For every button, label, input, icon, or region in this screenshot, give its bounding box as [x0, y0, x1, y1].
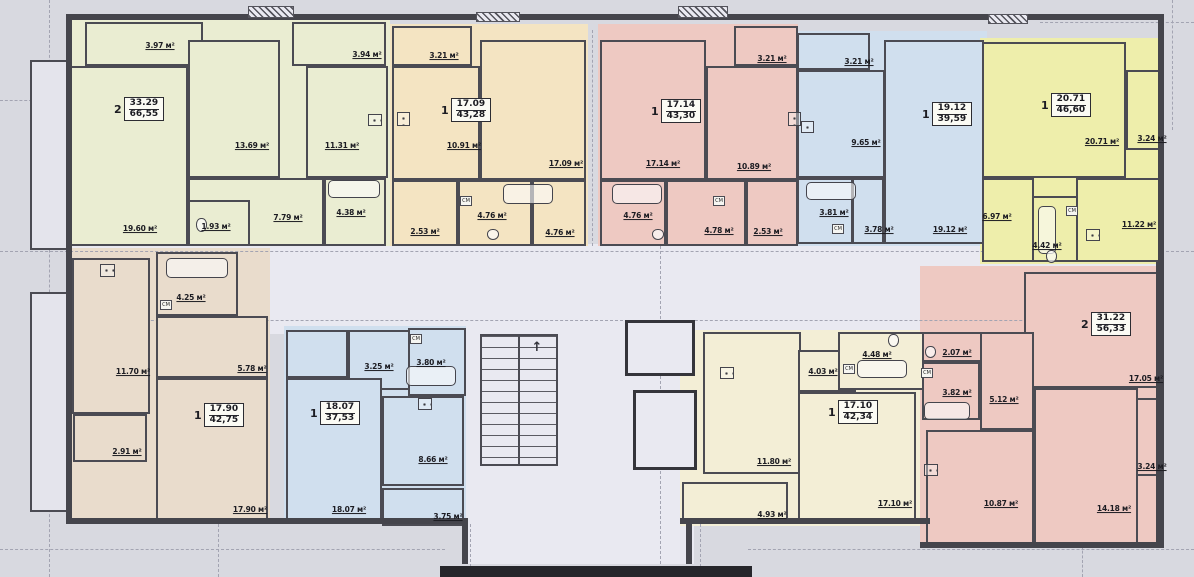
- bathtub-icon: [406, 366, 456, 386]
- apartment-total-area: 66,55: [129, 110, 159, 120]
- room-area-label: 2.53 м²: [753, 227, 782, 236]
- apartment-areas: 17.9042,75: [204, 403, 244, 427]
- room-area-label: 3.81 м²: [819, 208, 848, 217]
- room-area-label: 4.78 м²: [704, 226, 733, 235]
- stove-icon: [368, 114, 382, 126]
- apartment-areas: 31.2256,33: [1091, 312, 1131, 336]
- room-area-label: 19.60 м²: [123, 224, 157, 233]
- room-area-label: 1.93 м²: [201, 222, 230, 231]
- apartment-room-count: 1: [828, 406, 836, 419]
- apartment-areas: 17.1443,30: [661, 99, 701, 123]
- apartment-info-box: 120.7146,60: [1041, 93, 1091, 117]
- room-area-label: 3.21 м²: [844, 57, 873, 66]
- room-area-label: 9.65 м²: [851, 138, 880, 147]
- apartment-room-count: 1: [651, 105, 659, 118]
- apartment-total-area: 43,30: [666, 112, 696, 122]
- washing-machine-label: СМ: [843, 364, 855, 374]
- room: [30, 292, 68, 512]
- apartment-info-box: 117.0943,28: [441, 98, 491, 122]
- room: [852, 178, 884, 244]
- toilet-icon: [652, 229, 664, 240]
- apartment-areas: 17.0943,28: [451, 98, 491, 122]
- room: [72, 258, 150, 414]
- apartment-total-area: 39,59: [937, 115, 967, 125]
- apartment-areas: 19.1239,59: [932, 102, 972, 126]
- room-area-label: 10.89 м²: [737, 162, 771, 171]
- room-area-label: 4.03 м²: [808, 367, 837, 376]
- stove-icon: [397, 112, 410, 126]
- bathtub-icon: [503, 184, 553, 204]
- room: [884, 40, 984, 244]
- wall: [1156, 262, 1164, 546]
- washing-machine-label: СМ: [921, 368, 933, 378]
- apartment-room-count: 2: [114, 103, 122, 116]
- room-area-label: 4.76 м²: [545, 228, 574, 237]
- apartment-room-count: 2: [1081, 318, 1089, 331]
- apartment-total-area: 37,53: [325, 414, 355, 424]
- room-area-label: 11.70 м²: [116, 367, 150, 376]
- stairs-up-arrow: ↑: [531, 340, 542, 355]
- bathtub-icon: [924, 402, 970, 420]
- apartment-room-count: 1: [441, 104, 449, 117]
- room-area-label: 3.75 м²: [433, 512, 462, 521]
- room-area-label: 11.22 м²: [1122, 220, 1156, 229]
- elevator-shaft: [625, 320, 695, 376]
- apartment-info-box: 231.2256,33: [1081, 312, 1131, 336]
- room-area-label: 2.91 м²: [112, 447, 141, 456]
- balcony-railing-hatch: [988, 14, 1028, 24]
- room: [286, 378, 382, 520]
- axis-dash-line: [1082, 546, 1083, 577]
- room-area-label: 7.79 м²: [273, 213, 302, 222]
- wall: [66, 518, 468, 524]
- room-area-label: 8.66 м²: [418, 455, 447, 464]
- room-area-label: 5.12 м²: [989, 395, 1018, 404]
- balcony-railing-hatch: [476, 12, 520, 22]
- room-area-label: 3.97 м²: [145, 41, 174, 50]
- room: [926, 430, 1034, 544]
- apartment-info-box: 233.2966,55: [114, 97, 164, 121]
- room: [746, 180, 798, 246]
- balcony-railing-hatch: [678, 6, 728, 18]
- room: [156, 378, 268, 520]
- wall: [462, 518, 468, 564]
- staircase-divider: [518, 334, 520, 466]
- axis-dash-line: [592, 30, 593, 246]
- room-area-label: 10.87 м²: [984, 499, 1018, 508]
- stove-icon: [1086, 229, 1100, 241]
- room: [292, 22, 386, 66]
- toilet-icon: [1046, 250, 1057, 263]
- apartment-areas: 33.2966,55: [124, 97, 164, 121]
- room: [1034, 388, 1138, 544]
- wall: [920, 542, 1164, 548]
- room-area-label: 3.21 м²: [757, 54, 786, 63]
- apartment-info-box: 117.1042,34: [828, 400, 878, 424]
- stove-icon: [788, 112, 801, 126]
- stove-icon: [418, 398, 432, 410]
- room-area-label: 3.24 м²: [1137, 462, 1166, 471]
- room-area-label: 18.07 м²: [332, 505, 366, 514]
- room-area-label: 3.21 м²: [429, 51, 458, 60]
- room-area-label: 10.91 м²: [447, 141, 481, 150]
- axis-dash-line: [0, 549, 445, 550]
- room-area-label: 4.25 м²: [176, 293, 205, 302]
- bathtub-icon: [166, 258, 228, 278]
- apartment-total-area: 42,75: [209, 416, 239, 426]
- stove-icon: [720, 367, 734, 379]
- room-area-label: 2.53 м²: [410, 227, 439, 236]
- room-area-label: 5.78 м²: [237, 364, 266, 373]
- apartment-room-count: 1: [194, 409, 202, 422]
- washing-machine-label: СМ: [410, 334, 422, 344]
- apartment-info-box: 117.1443,30: [651, 99, 701, 123]
- room: [30, 60, 68, 250]
- room-area-label: 3.24 м²: [1137, 134, 1166, 143]
- wall: [680, 518, 930, 524]
- apartment-total-area: 42,34: [843, 413, 873, 423]
- axis-dash-line: [1172, 0, 1173, 130]
- axis-dash-line: [218, 524, 219, 577]
- room: [70, 66, 188, 246]
- apartment-areas: 17.1042,34: [838, 400, 878, 424]
- washing-machine-label: СМ: [713, 196, 725, 206]
- apartment-info-box: 118.0737,53: [310, 401, 360, 425]
- room-area-label: 11.31 м²: [325, 141, 359, 150]
- room-area-label: 17.10 м²: [878, 499, 912, 508]
- room-area-label: 17.14 м²: [646, 159, 680, 168]
- washing-machine-label: СМ: [1066, 206, 1078, 216]
- room-area-label: 3.78 м²: [864, 225, 893, 234]
- apartment-room-count: 1: [310, 407, 318, 420]
- room-area-label: 6.97 м²: [982, 212, 1011, 221]
- room-area-label: 4.76 м²: [623, 211, 652, 220]
- room-area-label: 4.42 м²: [1032, 241, 1061, 250]
- stove-icon: [801, 121, 814, 133]
- room: [85, 22, 203, 66]
- apartment-info-box: 119.1239,59: [922, 102, 972, 126]
- apartment-areas: 18.0737,53: [320, 401, 360, 425]
- wall: [686, 518, 692, 564]
- room: [980, 332, 1034, 430]
- toilet-icon: [487, 229, 499, 240]
- room-area-label: 17.90 м²: [233, 505, 267, 514]
- axis-dash-line: [1040, 22, 1194, 23]
- room-area-label: 19.12 м²: [933, 225, 967, 234]
- room-area-label: 3.82 м²: [942, 388, 971, 397]
- room-area-label: 4.48 м²: [862, 350, 891, 359]
- toilet-icon: [888, 334, 899, 347]
- toilet-icon: [925, 346, 936, 358]
- balcony-railing-hatch: [248, 6, 294, 18]
- room: [188, 40, 280, 178]
- room: [286, 330, 348, 378]
- washing-machine-label: СМ: [832, 224, 844, 234]
- room-area-label: 4.38 м²: [336, 208, 365, 217]
- stove-icon: [100, 264, 115, 277]
- apartment-total-area: 56,33: [1096, 325, 1126, 335]
- wall: [66, 14, 72, 524]
- washing-machine-label: СМ: [160, 300, 172, 310]
- bathtub-icon: [806, 182, 856, 200]
- room-area-label: 3.80 м²: [416, 358, 445, 367]
- apartment-room-count: 1: [1041, 99, 1049, 112]
- apartment-total-area: 46,60: [1056, 106, 1086, 116]
- room: [666, 180, 746, 246]
- room-area-label: 4.76 м²: [477, 211, 506, 220]
- room-area-label: 17.09 м²: [549, 159, 583, 168]
- floor-plan-canvas: ↑СМСМСМСМСМСМСМСМ3.97 м²3.94 м²13.69 м²1…: [0, 0, 1194, 577]
- room-area-label: 4.93 м²: [757, 510, 786, 519]
- room-area-label: 17.05 м²: [1129, 374, 1163, 383]
- apartment-room-count: 1: [922, 108, 930, 121]
- bathtub-icon: [612, 184, 662, 204]
- apartment-total-area: 43,28: [456, 111, 486, 121]
- apartment-info-box: 117.9042,75: [194, 403, 244, 427]
- room-area-label: 14.18 м²: [1097, 504, 1131, 513]
- room: [392, 180, 458, 246]
- room: [703, 332, 801, 474]
- room-area-label: 20.71 м²: [1085, 137, 1119, 146]
- room-area-label: 11.80 м²: [757, 457, 791, 466]
- room-area-label: 2.07 м²: [942, 348, 971, 357]
- room-area-label: 13.69 м²: [235, 141, 269, 150]
- bathtub-icon: [857, 360, 907, 378]
- stove-icon: [924, 464, 938, 476]
- room-area-label: 3.25 м²: [364, 362, 393, 371]
- room-area-label: 3.94 м²: [352, 50, 381, 59]
- apartment-areas: 20.7146,60: [1051, 93, 1091, 117]
- elevator-shaft: [633, 390, 697, 470]
- washing-machine-label: СМ: [460, 196, 472, 206]
- axis-dash-line: [748, 549, 1194, 550]
- bathtub-icon: [328, 180, 380, 198]
- entrance-canopy: [440, 566, 752, 577]
